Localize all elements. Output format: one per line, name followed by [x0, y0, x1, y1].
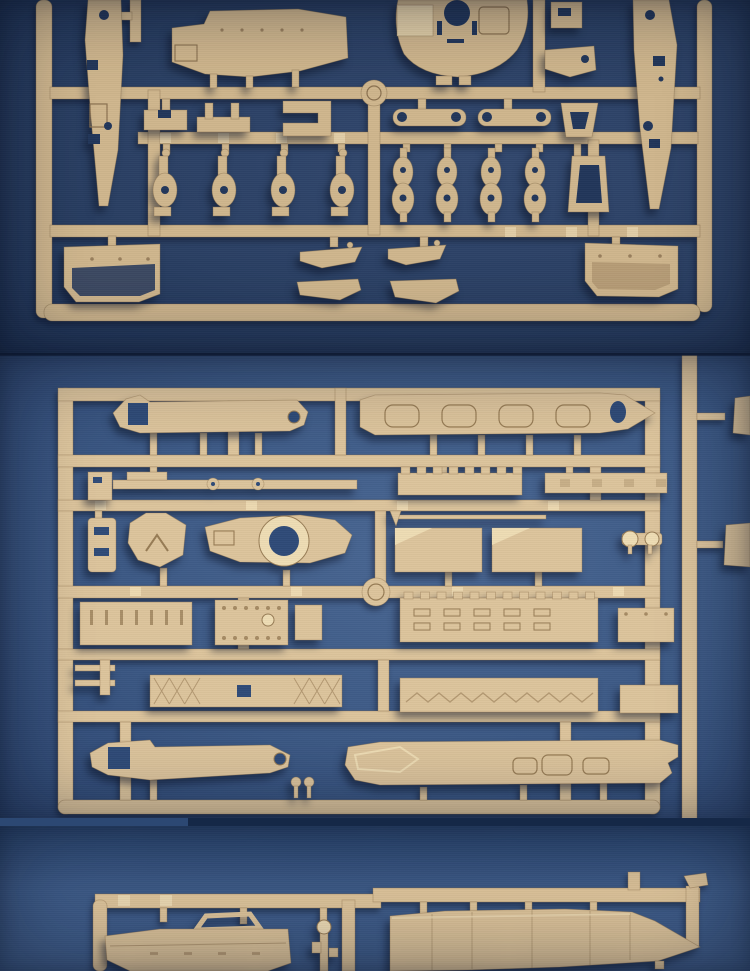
part-hole — [104, 122, 112, 130]
part-slot — [94, 527, 109, 535]
sprue-drawing — [0, 0, 750, 355]
sprue-stub — [445, 572, 452, 586]
small-wing-part — [390, 279, 459, 303]
toothed-rack-part — [398, 473, 522, 495]
rivet-dots — [240, 28, 243, 31]
cross-runner — [58, 649, 660, 660]
sprue-stub — [495, 144, 502, 152]
part-hole — [397, 112, 407, 122]
sprue-stub — [420, 902, 427, 914]
bogie-part — [488, 195, 495, 202]
small-box-part — [295, 605, 322, 640]
part-opening — [237, 685, 251, 697]
vent-slots — [218, 952, 226, 955]
part-number-tab — [566, 227, 577, 237]
part-leg — [628, 545, 632, 554]
sprue-stub — [478, 435, 485, 455]
part-leg — [648, 545, 652, 554]
vent-slots — [184, 952, 192, 955]
panel-slots — [150, 610, 153, 625]
bottom-rail — [44, 304, 700, 321]
pontoon-hull-part — [345, 740, 678, 785]
rack-teeth — [513, 467, 522, 474]
part-hole — [274, 753, 286, 765]
sprue-stub — [330, 237, 338, 247]
vertical-runner — [686, 886, 699, 946]
bogie-part — [532, 167, 538, 173]
part-hole — [643, 121, 653, 131]
hatch-panel — [397, 5, 433, 36]
rack-teeth — [401, 467, 410, 474]
edge-partial-part — [733, 396, 750, 435]
part-number-tab — [627, 227, 638, 237]
part-number-tab — [613, 587, 624, 596]
cab-frame-part — [196, 914, 260, 930]
bogie-part — [444, 212, 451, 222]
box-interior-shadow — [72, 264, 155, 296]
part-detail — [127, 472, 167, 480]
deck-teeth — [421, 592, 430, 599]
part-hole — [211, 482, 215, 486]
strip-slots — [656, 479, 666, 487]
shock-absorber-part — [279, 186, 287, 194]
rack-teeth — [433, 467, 442, 474]
left-rail — [93, 900, 107, 971]
part-opening — [576, 165, 602, 203]
shield-part — [128, 513, 186, 567]
rivet-dots — [658, 254, 662, 258]
ring-opening — [269, 526, 299, 556]
part-number-tab — [291, 587, 302, 596]
bogie-part — [444, 167, 450, 173]
panel-slots — [135, 610, 138, 625]
deck-plate-part — [400, 598, 598, 642]
sprue-stub — [436, 76, 452, 85]
part-hole — [581, 55, 589, 63]
small-wing-part — [300, 247, 362, 268]
part-post — [347, 242, 353, 248]
deck-teeth — [536, 592, 545, 599]
part-hole — [99, 10, 109, 20]
sprue-stub — [160, 568, 167, 586]
part-hole — [649, 139, 660, 148]
part-slot — [94, 548, 109, 556]
bottom-rail — [58, 800, 660, 814]
part-holes — [244, 606, 248, 610]
strip-slots — [560, 479, 570, 487]
sprue-stub — [162, 99, 170, 111]
vertical-runner — [342, 900, 355, 971]
panel-slots — [105, 610, 108, 625]
cab-window-opening — [128, 403, 148, 425]
sprue-stub — [655, 961, 664, 969]
deck-teeth — [404, 592, 413, 599]
strip-slots — [624, 479, 634, 487]
shock-absorber-part — [272, 207, 289, 216]
sprue-stub — [150, 780, 157, 800]
hull-side-right-part — [633, 0, 677, 209]
deck-teeth — [520, 592, 529, 599]
part-hole — [482, 112, 492, 122]
deck-teeth — [487, 592, 496, 599]
sprue-stub — [430, 435, 437, 455]
plate-part — [620, 685, 678, 713]
part-post — [291, 777, 301, 787]
small-wing-part — [297, 279, 361, 300]
deck-teeth — [569, 592, 578, 599]
right-rail — [697, 0, 712, 312]
part-hole — [659, 77, 664, 82]
left-rail — [58, 388, 73, 814]
rack-teeth — [497, 467, 506, 474]
mold-medallion — [361, 80, 387, 106]
part-slot — [447, 39, 464, 43]
part-slot — [472, 21, 477, 35]
cylinder-flange — [622, 531, 638, 547]
part-post — [434, 240, 440, 246]
part-holes — [244, 636, 248, 640]
part-holes — [255, 606, 259, 610]
part-hole — [653, 56, 665, 66]
part-holes — [266, 606, 270, 610]
mold-medallion — [362, 578, 390, 606]
part-number-tab — [118, 895, 130, 906]
antenna-rod-part — [398, 515, 546, 519]
part-number-tab — [334, 133, 345, 143]
part-slot — [437, 21, 442, 35]
part-number-tab — [246, 501, 257, 510]
shock-absorber-part — [338, 186, 346, 194]
sprue-stub — [697, 413, 725, 420]
sprue-stub — [420, 237, 428, 247]
sprue-drawing — [0, 824, 750, 971]
part-hole — [87, 60, 98, 70]
rivet-dots — [260, 28, 263, 31]
sprue-stub — [600, 783, 607, 800]
clamp-part — [283, 101, 331, 136]
vertical-runner — [378, 660, 389, 711]
part-number-tab — [548, 501, 559, 510]
part-holes — [664, 612, 668, 616]
deck-teeth — [553, 592, 562, 599]
rack-teeth — [481, 467, 490, 474]
part-hole — [451, 112, 461, 122]
part-holes — [233, 606, 237, 610]
cab-window-opening — [108, 747, 130, 769]
sprue-drawing — [0, 355, 750, 824]
cross-runner — [58, 711, 660, 722]
vertical-runner — [335, 388, 346, 455]
sprue-stub — [255, 433, 262, 455]
rivet-dots — [90, 257, 94, 261]
bogie-part — [444, 195, 451, 202]
deck-teeth — [437, 592, 446, 599]
fuselage-part — [390, 909, 700, 971]
rivet-dots — [220, 28, 223, 31]
part-hole — [88, 134, 100, 144]
part-hole — [536, 112, 546, 122]
deck-teeth — [454, 592, 463, 599]
part-number-tab — [397, 501, 408, 510]
part-post — [205, 103, 213, 119]
bogie-part — [400, 167, 406, 173]
rack-teeth — [465, 467, 474, 474]
sprue-stub — [160, 908, 167, 922]
vent-slots — [150, 952, 158, 955]
rivet-dots — [146, 257, 150, 261]
panel-slots — [90, 610, 93, 625]
sprue-parts-group — [105, 909, 700, 971]
part-number-tab — [95, 501, 106, 510]
sprue-stub — [283, 570, 290, 586]
deck-teeth — [503, 592, 512, 599]
part-post — [307, 786, 311, 798]
sprue-stub — [210, 74, 217, 88]
part-holes — [222, 606, 226, 610]
small-part — [312, 942, 321, 953]
rivet-dots — [118, 257, 122, 261]
fender-part — [172, 9, 348, 77]
part-post — [304, 777, 314, 787]
part-hole — [645, 10, 655, 20]
bogie-part — [532, 212, 539, 222]
part-hole — [256, 482, 260, 486]
part-holes — [266, 636, 270, 640]
deck-teeth — [586, 592, 595, 599]
vertical-runner — [533, 0, 545, 92]
part-opening — [610, 401, 626, 423]
panel-slots — [120, 610, 123, 625]
truck-hull-part — [105, 929, 291, 971]
shock-absorber-part — [220, 186, 228, 194]
top-rail — [95, 894, 381, 908]
part-hole — [288, 411, 300, 423]
rack-teeth — [417, 467, 426, 474]
bogie-part — [488, 212, 495, 222]
sprue-stub — [320, 908, 327, 921]
left-rail — [36, 0, 52, 318]
sprue-stub — [628, 872, 640, 890]
top-rail — [373, 888, 700, 902]
part-holes — [255, 636, 259, 640]
small-part — [329, 948, 338, 957]
part-number-tab — [218, 133, 229, 143]
part-number-tab — [160, 133, 171, 143]
sprue-photo-2 — [0, 355, 750, 824]
sprue-stub — [526, 435, 533, 455]
sprue-stub — [150, 433, 157, 455]
part-boss — [262, 614, 274, 626]
rivet-dots — [628, 254, 632, 258]
sprue-stub — [246, 76, 253, 88]
sprue-stub — [574, 435, 581, 455]
box-interior-shade — [592, 262, 670, 290]
sprue-stub — [459, 76, 471, 85]
vertical-runner — [375, 511, 386, 586]
small-wing-part — [388, 245, 446, 265]
vertical-runner — [130, 0, 141, 42]
sprue-stub — [697, 541, 723, 548]
part-holes — [624, 612, 628, 616]
part-holes — [277, 606, 281, 610]
part-post — [231, 103, 239, 119]
deck-teeth — [470, 592, 479, 599]
sprue-stub — [420, 787, 427, 800]
hull-side-left-part — [85, 0, 123, 206]
part-number-tab — [130, 587, 141, 596]
part-holes — [644, 612, 648, 616]
sprue-photo-1 — [0, 0, 750, 355]
product-photo-collage: Three stacked close-up photographs of ta… — [0, 0, 750, 971]
vertical-runner — [368, 103, 380, 235]
shock-absorber-part — [331, 207, 348, 216]
rivet-dots — [280, 28, 283, 31]
part-holes — [233, 636, 237, 640]
shock-absorber-part — [213, 207, 230, 216]
shock-absorber-part — [161, 186, 169, 194]
shock-absorber-part — [154, 207, 171, 216]
cylinder-flange — [645, 532, 659, 546]
panel-slots — [180, 610, 183, 625]
bracket-part — [545, 46, 596, 77]
small-part — [317, 920, 331, 934]
vent-slots — [252, 952, 260, 955]
panel-slots — [165, 610, 168, 625]
panel-part — [88, 518, 116, 572]
bogie-part — [400, 212, 407, 222]
bogie-part — [488, 167, 494, 173]
cross-runner — [58, 500, 660, 511]
turret-hatch-hole — [444, 0, 470, 26]
bracket-part — [88, 472, 112, 500]
sprue-stub — [520, 785, 527, 800]
rivet-dots — [598, 254, 602, 258]
sprue-stub — [292, 70, 299, 87]
part-post — [294, 786, 298, 798]
cross-runner — [58, 455, 660, 467]
rack-teeth — [449, 467, 458, 474]
bogie-part — [532, 195, 539, 202]
outer-rail — [682, 355, 697, 824]
part-hole — [558, 8, 571, 16]
part-hole — [93, 477, 102, 483]
part-holes — [222, 636, 226, 640]
part-notch — [158, 110, 171, 118]
bracket-part — [100, 660, 110, 695]
strip-slots — [592, 479, 602, 487]
sprue-stub — [574, 144, 581, 156]
part-number-tab — [160, 895, 172, 906]
axle-rod-part — [113, 480, 357, 489]
rivet-dots — [300, 28, 303, 31]
part-number-tab — [505, 227, 516, 237]
sprue-photo-3 — [0, 824, 750, 971]
bogie-part — [400, 195, 407, 202]
sprue-stub — [200, 433, 207, 455]
edge-partial-part — [724, 523, 750, 567]
part-holes — [277, 636, 281, 640]
sprue-stub — [535, 572, 542, 586]
